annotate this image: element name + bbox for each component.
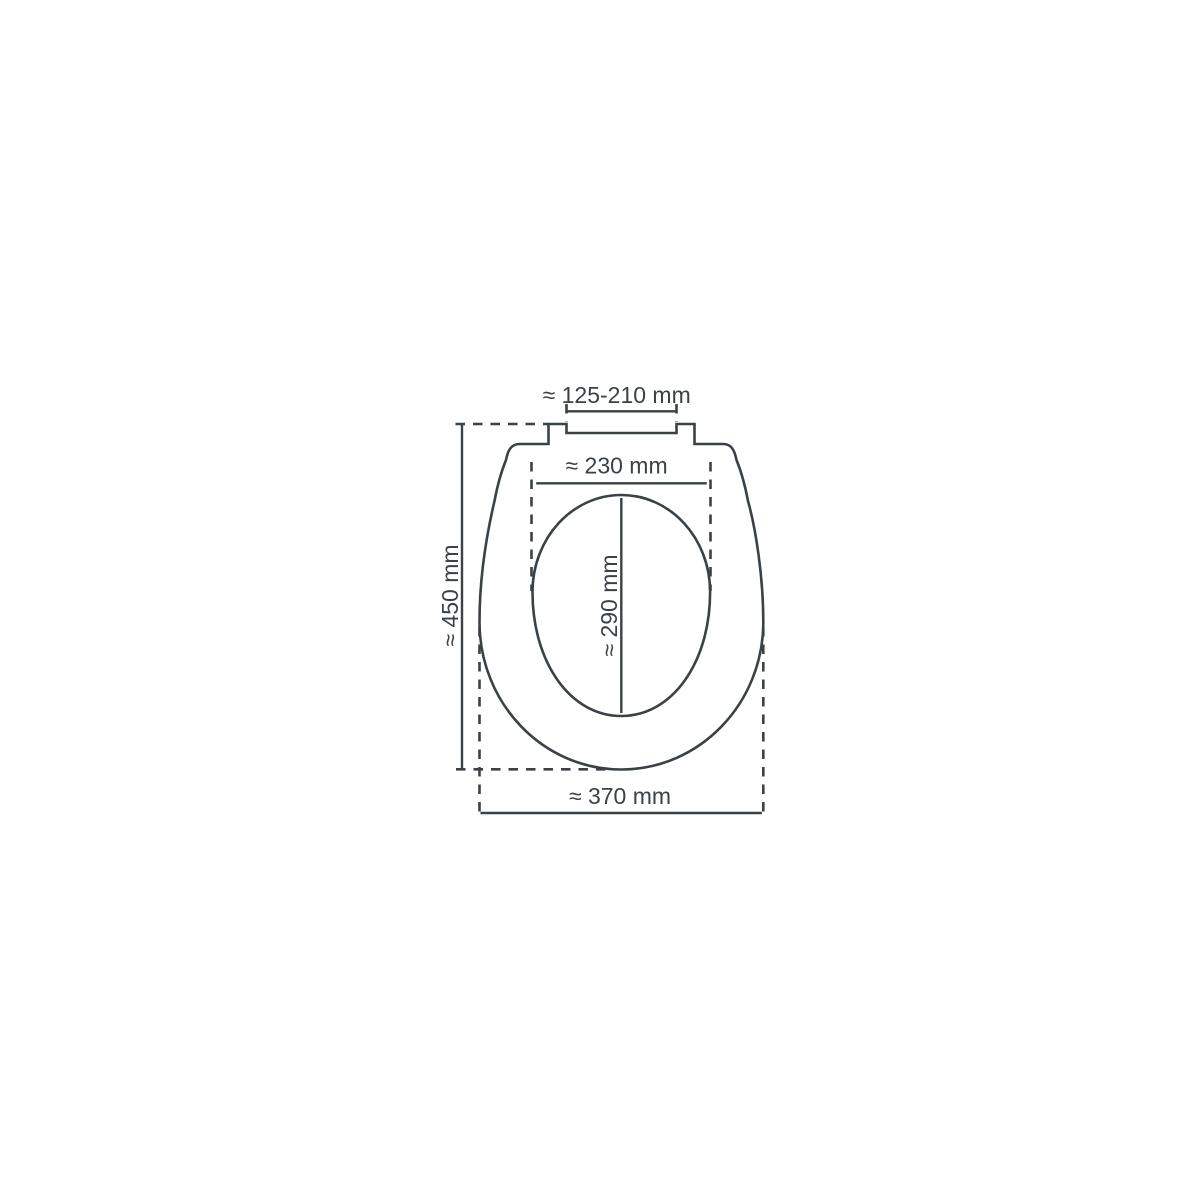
svg-text:≈ 125-210 mm: ≈ 125-210 mm	[543, 382, 691, 408]
svg-text:≈ 290 mm: ≈ 290 mm	[596, 554, 622, 656]
svg-text:≈ 230 mm: ≈ 230 mm	[566, 453, 668, 479]
svg-text:≈ 450 mm: ≈ 450 mm	[437, 544, 463, 646]
svg-text:≈ 370 mm: ≈ 370 mm	[569, 783, 671, 809]
